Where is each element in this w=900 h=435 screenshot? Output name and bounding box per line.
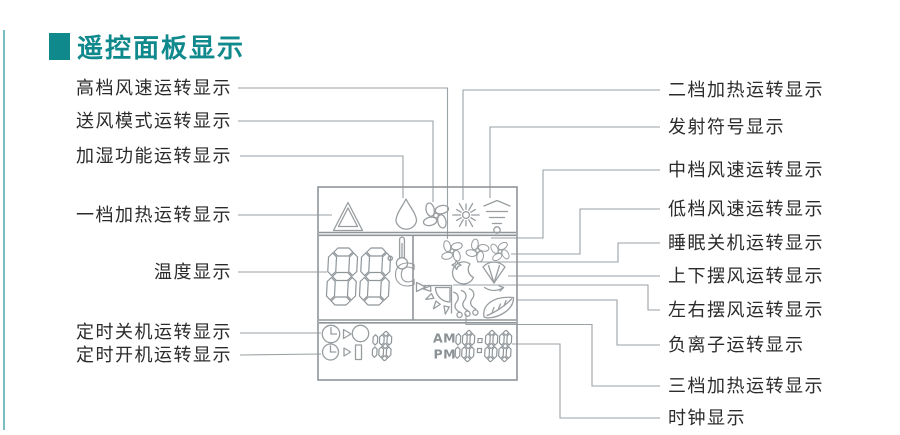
heat-level1-icon (334, 203, 363, 231)
fan-mode-icon (423, 202, 450, 229)
pm-indicator: PM (434, 347, 457, 362)
clock-digits (455, 331, 512, 362)
timer-off-icon (322, 325, 368, 342)
connector-lines (238, 88, 660, 418)
swing-updown-icon (483, 262, 505, 291)
sleep-icon (452, 261, 474, 284)
lcd-diagram: ° C AM PM (0, 0, 900, 435)
wind-high-icon (441, 240, 463, 262)
heat-level2-icon (453, 204, 479, 227)
timer-digits (372, 332, 392, 361)
page: 遥控面板显示 高档风速运转显示 送风模式运转显示 加湿功能运转显示 一档加热运转… (0, 0, 900, 435)
am-indicator: AM (433, 331, 456, 346)
temperature-digits (326, 248, 391, 305)
wind-low-icon (488, 239, 513, 264)
humidify-icon (396, 199, 417, 229)
celsius-letter: C (394, 259, 416, 294)
anion-icon (484, 297, 514, 318)
timer-on-icon (323, 344, 362, 360)
heat-level3-icon (452, 288, 479, 319)
swing-leftright-icon (417, 283, 452, 315)
wind-mid-icon (464, 237, 492, 265)
transmit-icon (484, 201, 510, 234)
